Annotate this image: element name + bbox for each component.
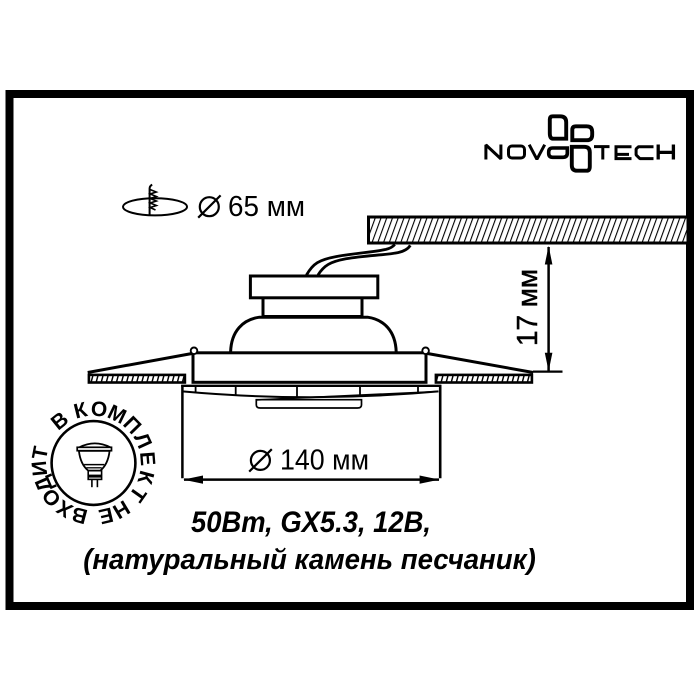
svg-text:Е: Е <box>135 451 159 467</box>
svg-text:140 мм: 140 мм <box>280 445 369 477</box>
svg-text:И: И <box>28 460 52 477</box>
svg-text:17 мм: 17 мм <box>512 269 544 346</box>
svg-text:50Вт, GX5.3, 12В,: 50Вт, GX5.3, 12В, <box>191 506 431 539</box>
svg-text:(натуральный камень песчаник): (натуральный камень песчаник) <box>83 544 536 576</box>
svg-text:65 мм: 65 мм <box>228 191 305 223</box>
